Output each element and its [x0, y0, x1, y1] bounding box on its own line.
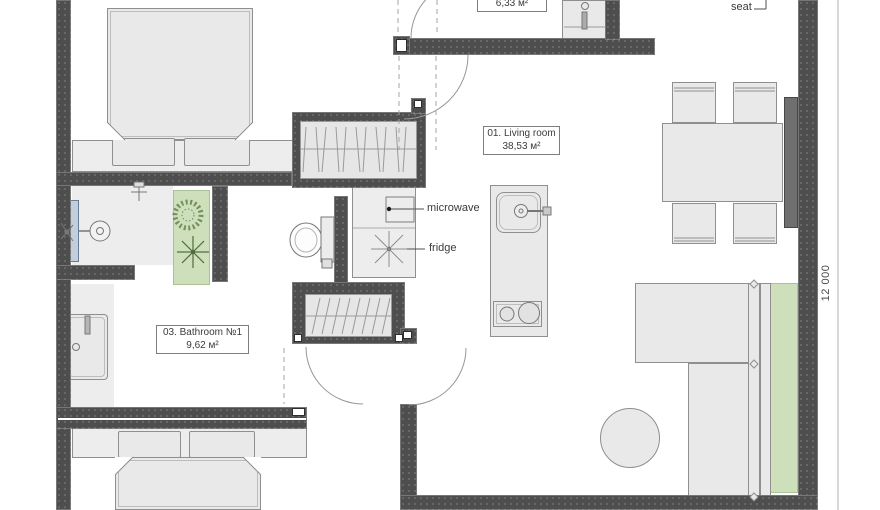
- chair-backrest-lines: [674, 88, 775, 241]
- dimension-text-right: 12 000: [820, 252, 832, 314]
- microwave-callout: microwave: [427, 202, 480, 214]
- shower-head-icon: [61, 221, 110, 241]
- bathroom-area: 9,62 м²: [160, 340, 245, 353]
- utility-room-label: 6,33 м²: [477, 0, 547, 12]
- blanket-fold-marks: [107, 122, 261, 475]
- sink-faucet-icon: [515, 205, 552, 218]
- seat-callout: seat: [731, 1, 752, 13]
- living-room-name: 01. Living room: [487, 128, 556, 141]
- floor-plan-canvas: 01. Living room 38,53 м² 03. Bathroom №1…: [0, 0, 880, 510]
- vanity-faucet-icon: [73, 316, 91, 351]
- closet2-hanging-clothes: [306, 298, 392, 334]
- wardrobe-hanging-clothes: [300, 127, 417, 172]
- washing-machine-detail: [564, 3, 606, 30]
- fridge-callout: fridge: [429, 242, 457, 254]
- plant-icons: [175, 202, 209, 268]
- toilet-icon: [290, 217, 334, 268]
- shower-mixer-icon: [131, 182, 147, 201]
- bathroom-name: 03. Bathroom №1: [160, 327, 245, 340]
- sofa-joint-markers: [750, 280, 758, 501]
- plan-linework: [0, 0, 880, 510]
- fridge-icon: [371, 231, 407, 267]
- bathroom-label: 03. Bathroom №1 9,62 м²: [156, 325, 249, 354]
- living-room-label: 01. Living room 38,53 м²: [483, 126, 560, 155]
- microwave-icon: [353, 197, 415, 228]
- utility-room-area: 6,33 м²: [496, 0, 528, 10]
- cooktop-burners: [500, 303, 540, 324]
- living-room-area: 38,53 м²: [487, 141, 556, 154]
